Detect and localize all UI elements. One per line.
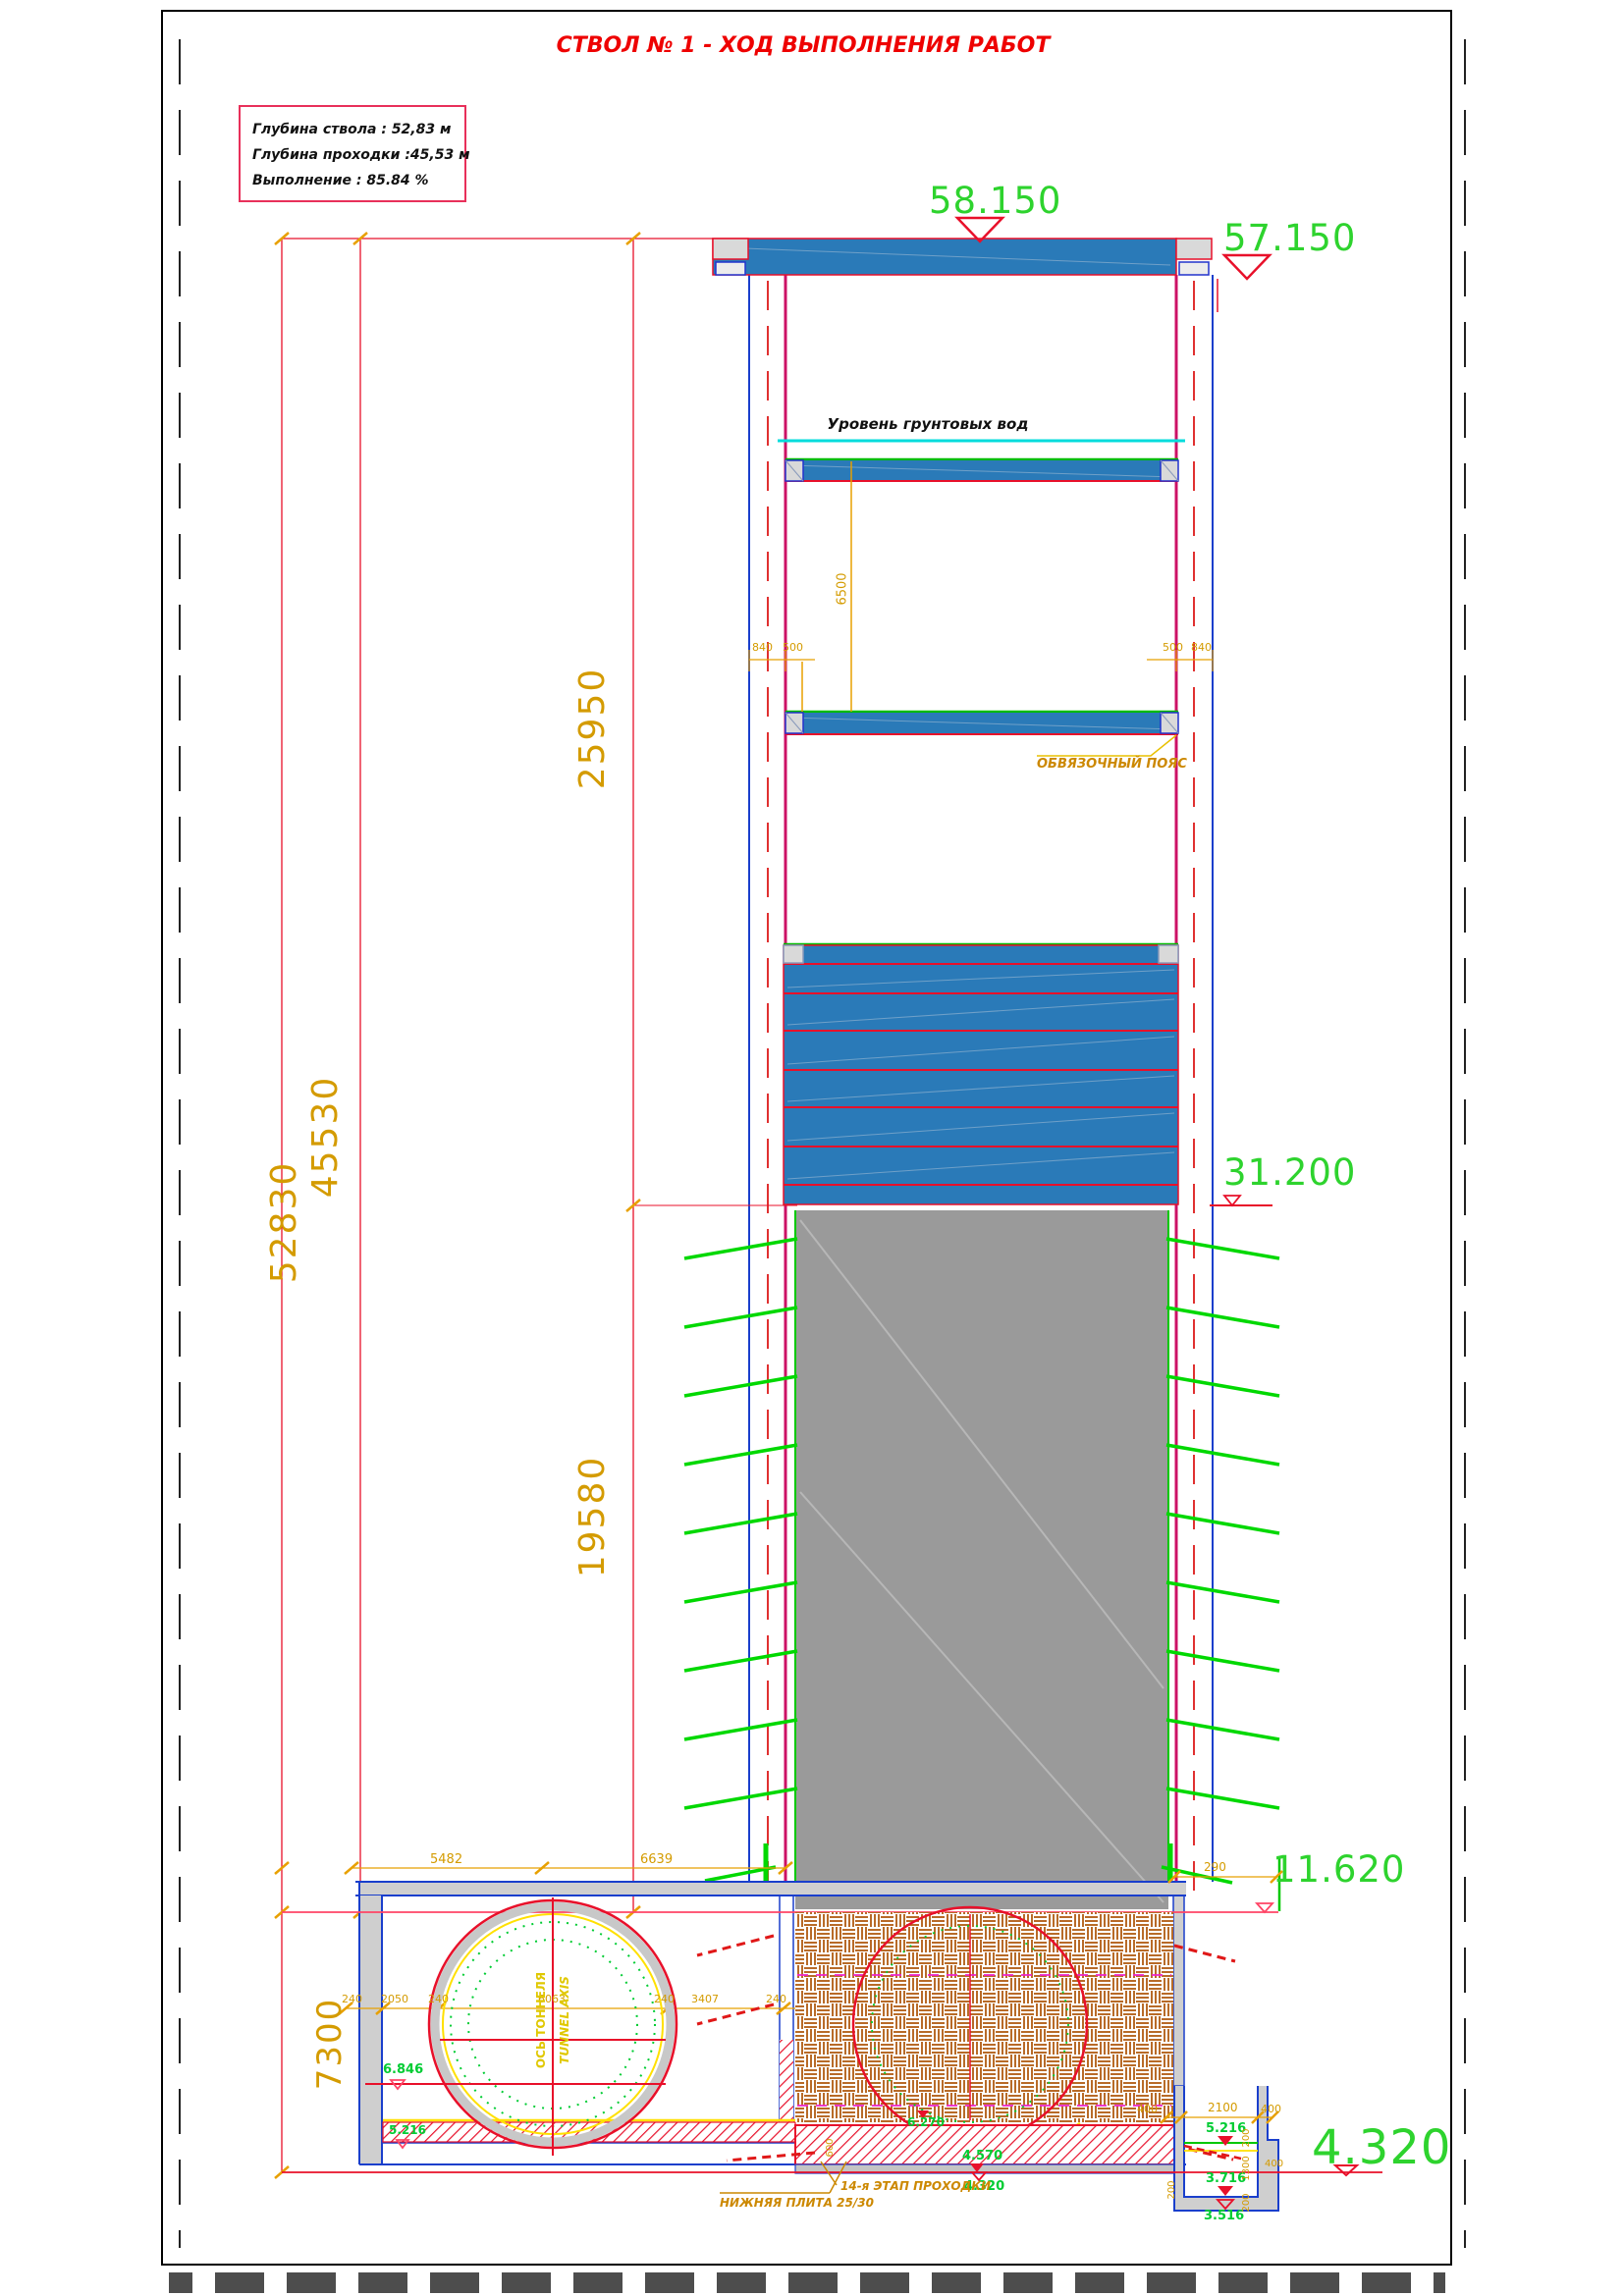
- frame-bottom-dashes: [169, 2272, 1445, 2293]
- elevation-slab-top: 4.570: [962, 2150, 1002, 2163]
- elevation-excavation: 11.620: [1272, 1851, 1405, 1888]
- tunnel-axis-label-en: TUNNEL AXIS: [559, 1976, 570, 2064]
- dim-pit-offset: 290: [1204, 1861, 1226, 1873]
- elevation-collar: 57.150: [1223, 220, 1356, 256]
- drawing-canvas: [0, 0, 1624, 2296]
- masonry-section: [795, 1907, 1173, 2160]
- collar-slab: [713, 218, 1270, 312]
- tie-belt-label: ОБВЯЗОЧНЫЙ ПОЯС: [1037, 758, 1187, 771]
- info-depth-shaft: Глубина ствола : 52,83 м: [252, 123, 451, 136]
- elevation-sump-mid: 3.716: [1206, 2172, 1246, 2185]
- info-box: Глубина ствола : 52,83 м Глубина проходк…: [239, 105, 466, 202]
- dim-row-5: 3407: [691, 1994, 719, 2004]
- excavated-section: [795, 1210, 1168, 1909]
- tie-belt-leader: [1037, 735, 1176, 756]
- elevation-surface: 58.150: [929, 183, 1061, 219]
- dim-lower-section: 19580: [575, 1456, 611, 1578]
- dim-row-1: 2050: [381, 1994, 408, 2004]
- dim-level-spacing: 6500: [837, 572, 849, 605]
- dim-sump-left: 200: [1167, 2180, 1177, 2199]
- dim-gallery-height: 7300: [313, 1998, 347, 2091]
- dim-slab-thickness: 600: [826, 2138, 836, 2157]
- dim-gallery-top-b: 6639: [640, 1853, 673, 1866]
- dim-sump-v-0: 200: [1242, 2128, 1252, 2147]
- dim-sump-v-1: 1300: [1242, 2156, 1252, 2180]
- drawing-sheet: СТВОЛ № 1 - ХОД ВЫПОЛНЕНИЯ РАБОТ Глубина…: [0, 0, 1624, 2296]
- dim-wall-left-a: 840: [752, 642, 773, 653]
- elevation-shaft-bottom: 4.320: [1312, 2124, 1451, 2171]
- dim-gallery-top-a: 5482: [430, 1853, 462, 1866]
- left-wall-hatch: [780, 2040, 793, 2122]
- level-marker-31200: [1210, 1196, 1272, 1205]
- drawing-title: СТВОЛ № 1 - ХОД ВЫПОЛНЕНИЯ РАБОТ: [557, 35, 1051, 57]
- info-completion: Выполнение : 85.84 %: [252, 174, 429, 187]
- dim-sump-v-2: 200: [1242, 2193, 1252, 2212]
- dim-row-2: 240: [428, 1994, 449, 2004]
- tunnel-section: [365, 1897, 677, 2156]
- stage-note: 14-я ЭТАП ПРОХОДКИ: [840, 2180, 991, 2192]
- level-marker-5216: [1218, 2136, 1233, 2146]
- groundwater-label: Уровень грунтовых вод: [828, 417, 1029, 432]
- elevation-lining-bottom: 31.200: [1223, 1154, 1356, 1191]
- info-depth-advance: Глубина проходки :45,53 м: [252, 148, 470, 162]
- elevation-tunnel-springline: 6.846: [383, 2063, 423, 2076]
- dim-row-0: 240: [342, 1994, 362, 2004]
- dim-advance-depth: 45530: [308, 1076, 344, 1199]
- elevation-sump-bottom: 3.516: [1204, 2210, 1244, 2222]
- tunnel-axis-label-ru: ОСЬ ТОННЕЛЯ: [535, 1972, 547, 2068]
- dim-wall-right-b: 840: [1191, 642, 1212, 653]
- bottom-slab-note: НИЖНЯЯ ПЛИТА 25/30: [720, 2197, 874, 2209]
- dim-upper-section: 25950: [575, 667, 611, 790]
- elevation-gallery-floor: 5.216: [389, 2124, 426, 2136]
- dim-sump-side-b: 400: [1261, 2104, 1281, 2114]
- level-marker-3716: [1218, 2186, 1233, 2196]
- dim-sump-width: 2100: [1208, 2102, 1238, 2113]
- elevation-sump-top: 5.216: [1206, 2122, 1246, 2135]
- dim-wall-left-b: 500: [783, 642, 803, 653]
- lining-rings: [784, 944, 1178, 1204]
- right-lower-wall: [1173, 1895, 1184, 2086]
- dim-sump-side-a: 400: [1137, 2104, 1158, 2114]
- dim-sump-step: 400: [1265, 2160, 1283, 2169]
- dim-row-4: 240: [654, 1994, 675, 2004]
- dim-total-depth: 52830: [267, 1161, 302, 1284]
- intermediate-slab-1: [785, 459, 1178, 481]
- dim-row-6: 240: [766, 1994, 786, 2004]
- elevation-masonry: 6.270: [907, 2116, 945, 2128]
- tie-belt-slab: [785, 712, 1178, 756]
- dim-wall-right-a: 500: [1163, 642, 1183, 653]
